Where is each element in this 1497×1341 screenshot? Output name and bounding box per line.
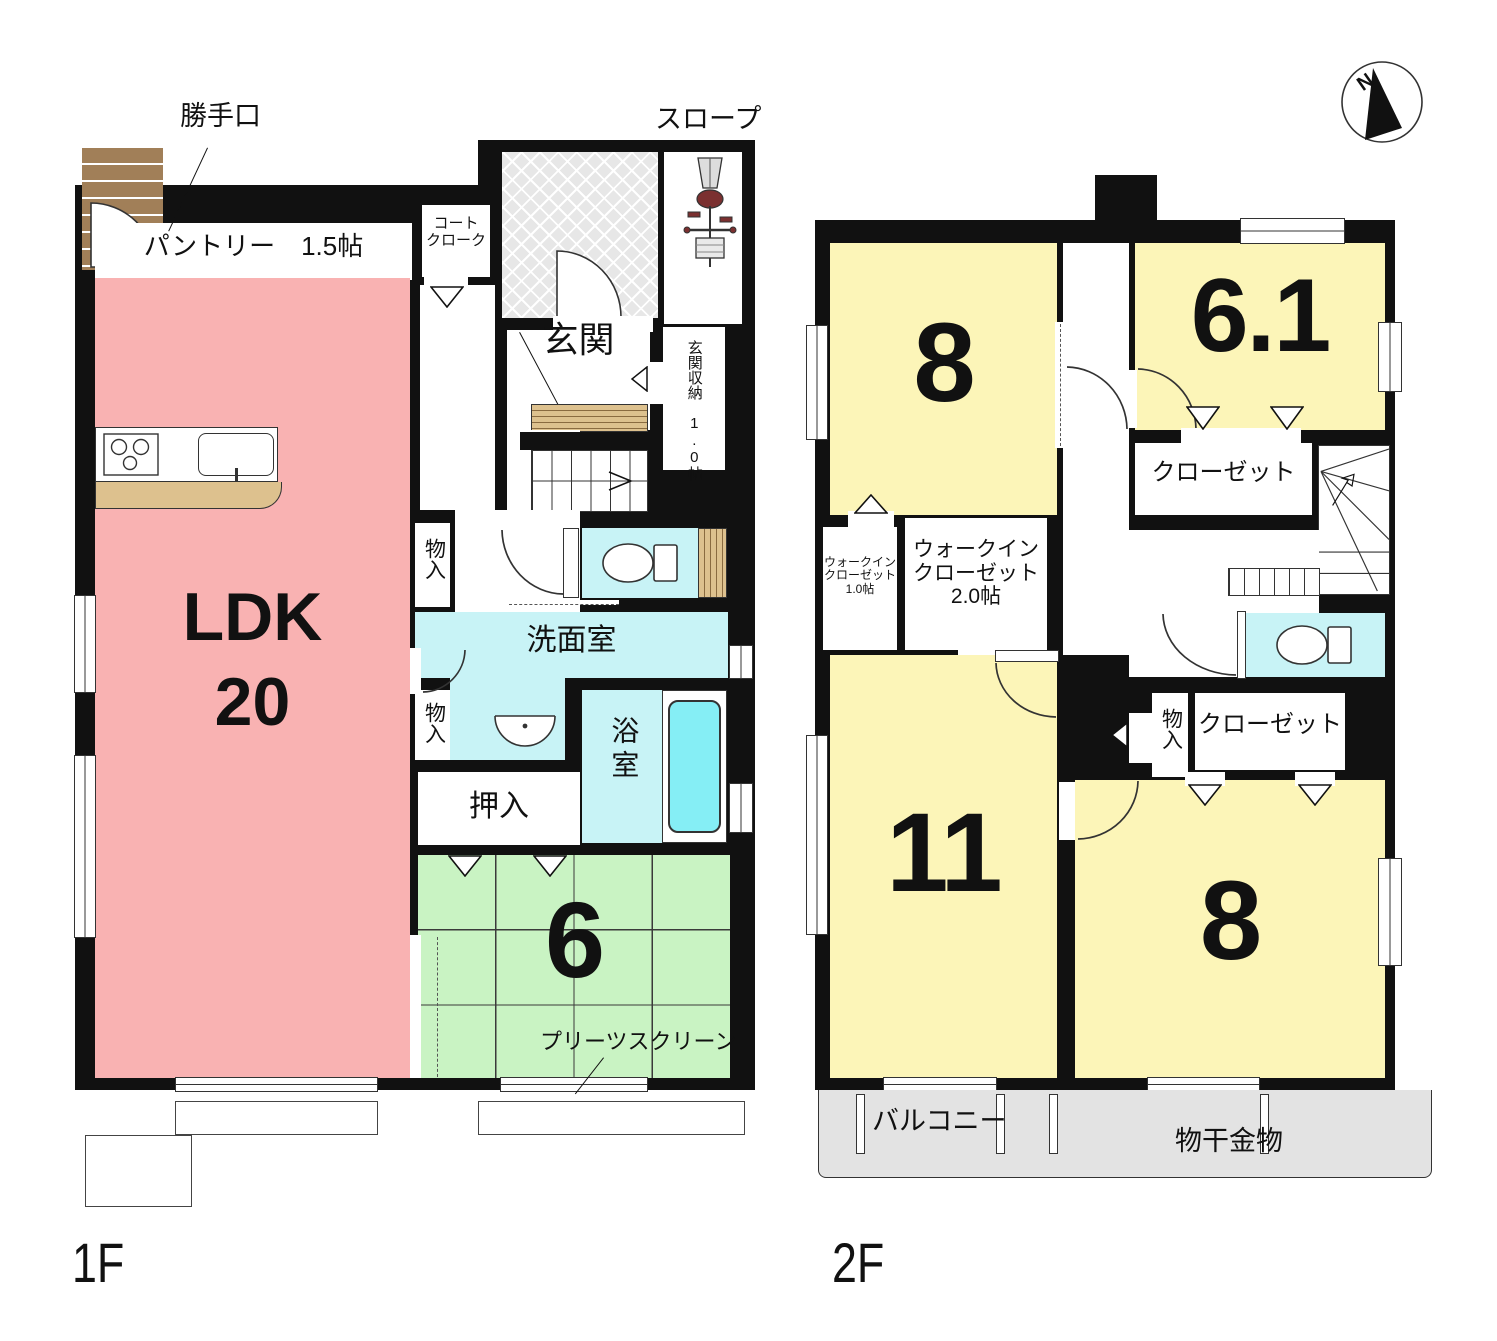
door-swing-marker bbox=[1188, 784, 1222, 806]
window bbox=[1240, 218, 1345, 244]
window bbox=[175, 1077, 378, 1092]
ldk-name: LDK bbox=[95, 575, 410, 660]
sliding-door-2f bbox=[1060, 324, 1061, 446]
bedroom-8b-door-gap bbox=[1059, 782, 1075, 840]
window bbox=[806, 735, 828, 935]
bathroom-label: 浴室 bbox=[608, 716, 639, 826]
window bbox=[500, 1077, 648, 1092]
drying-hardware-label: 物干金物 bbox=[1175, 1126, 1283, 1156]
corridor bbox=[420, 285, 495, 510]
floorplan-page: { "colors": { "wall": "#111111", "ldk_pi… bbox=[0, 0, 1497, 1341]
storage-2f-door-gap bbox=[1129, 713, 1152, 763]
entrance-step bbox=[531, 404, 648, 432]
balcony-post bbox=[1049, 1094, 1058, 1154]
storage-lower-label: 物入 bbox=[422, 702, 446, 752]
washbasin-icon bbox=[492, 710, 558, 758]
wic10-line1: ウォークイン bbox=[823, 556, 897, 569]
futon-closet-label: 押入 bbox=[418, 790, 580, 824]
closet-2f-label: クローゼット bbox=[1195, 712, 1345, 739]
stair-treads-band bbox=[1228, 568, 1320, 596]
balcony-post bbox=[856, 1094, 865, 1154]
entrance-label: 玄関 bbox=[507, 320, 650, 360]
window bbox=[729, 783, 753, 833]
coat-closet-line1: コート bbox=[422, 216, 490, 233]
window bbox=[74, 595, 96, 693]
toilet-door-leaf bbox=[563, 528, 579, 598]
f2-wall-notch bbox=[1095, 175, 1157, 223]
window bbox=[729, 645, 753, 679]
door-swing-marker bbox=[1298, 784, 1332, 806]
terrace-outline bbox=[175, 1101, 378, 1135]
staircase-2f bbox=[1318, 445, 1390, 595]
balcony-label: バルコニー bbox=[872, 1106, 1006, 1136]
bedroom-61-label: 6.1 bbox=[1135, 258, 1385, 374]
bedroom-8-bottom-label: 8 bbox=[1075, 858, 1385, 983]
entrance-storage-door-gap bbox=[648, 362, 663, 404]
storage-upper-label: 物入 bbox=[422, 538, 446, 598]
stove-icon bbox=[103, 433, 159, 476]
ldk-size: 20 bbox=[95, 660, 410, 745]
door-swing-marker bbox=[1270, 406, 1304, 430]
door-swing-marker bbox=[854, 494, 888, 514]
storage-2f-label: 物入 bbox=[1159, 708, 1183, 764]
door-swing-marker bbox=[1186, 406, 1220, 430]
wic20-size: 2.0帖 bbox=[905, 585, 1047, 609]
window bbox=[806, 325, 828, 440]
back-door-label: 勝手口 bbox=[180, 101, 261, 131]
hall-door-arc bbox=[1066, 366, 1128, 430]
washroom-sliding-door bbox=[509, 600, 619, 605]
compass-icon: N bbox=[1336, 56, 1428, 148]
toilet-door-arc bbox=[501, 529, 564, 595]
toilet-shelf bbox=[698, 528, 727, 598]
bicycle-icon bbox=[680, 156, 740, 268]
pleats-screen-label: プリーツスクリーン bbox=[540, 1030, 736, 1055]
bedroom-61-door-gap bbox=[1129, 370, 1137, 428]
hallway-2f bbox=[1063, 243, 1129, 655]
f1-wall-under-step bbox=[520, 432, 648, 450]
door-swing-marker bbox=[533, 855, 567, 877]
door-swing-marker bbox=[448, 855, 482, 877]
front-door-swing-icon bbox=[556, 250, 622, 318]
closet-61-opening bbox=[1181, 428, 1301, 445]
toilet-2f-door-arc bbox=[1162, 613, 1237, 676]
closet-61-label: クローゼット bbox=[1135, 460, 1312, 487]
pantry-label: パントリー 1.5帖 bbox=[95, 232, 412, 261]
entrance-storage-label: 玄関収納 1.0帖 bbox=[685, 340, 702, 470]
washroom-label: 洗面室 bbox=[415, 624, 728, 658]
toilet-icon bbox=[1272, 621, 1356, 669]
ldk-label: LDK 20 bbox=[95, 575, 410, 745]
bedroom-11-door-leaf bbox=[995, 650, 1059, 662]
wic20-line1: ウォークイン bbox=[905, 538, 1047, 562]
window bbox=[74, 755, 96, 938]
slope-label: スロープ bbox=[655, 104, 761, 134]
door-swing-marker bbox=[430, 286, 464, 308]
door-opening-marker bbox=[630, 366, 648, 392]
stairs-direction-arrow bbox=[606, 470, 636, 492]
bedroom-11-label: 11 bbox=[830, 790, 1057, 915]
wic20-line2: クローゼット bbox=[905, 562, 1047, 586]
tatami-size-label: 6 bbox=[418, 880, 730, 1001]
floor1-title: 1F bbox=[72, 1232, 124, 1295]
terrace-outline bbox=[85, 1135, 192, 1207]
wic10-label: ウォークイン クローゼット 1.0帖 bbox=[823, 556, 897, 596]
toilet-2f-door-leaf bbox=[1237, 611, 1246, 679]
kitchen-base-counter bbox=[95, 482, 282, 509]
toilet-icon bbox=[598, 539, 682, 587]
wic10-size: 1.0帖 bbox=[823, 583, 897, 596]
door-opening-marker bbox=[1110, 722, 1128, 748]
bathtub bbox=[668, 700, 721, 833]
bedroom-8-top-label: 8 bbox=[830, 300, 1057, 425]
bedroom-11-door-arc bbox=[995, 662, 1057, 718]
terrace-outline bbox=[478, 1101, 745, 1135]
bedroom-8b-door-arc bbox=[1077, 780, 1139, 840]
coat-closet-line2: クローク bbox=[422, 233, 490, 250]
coat-closet-label: コート クローク bbox=[422, 216, 490, 250]
floor2-title: 2F bbox=[832, 1232, 884, 1295]
wic20-label: ウォークイン クローゼット 2.0帖 bbox=[905, 538, 1047, 609]
wic10-line2: クローゼット bbox=[823, 569, 897, 582]
